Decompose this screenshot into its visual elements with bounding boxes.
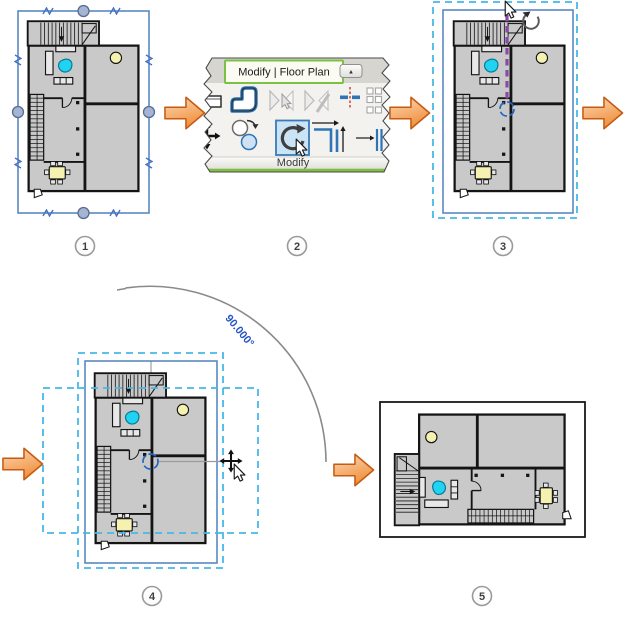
step-number: 3: [500, 241, 506, 253]
step3-rotation-center: [433, 1, 577, 218]
break-mark: [15, 55, 21, 65]
figure-canvas: Modify | Floor Plan ▲: [0, 0, 625, 618]
selection-handle-bottom[interactable]: [78, 208, 89, 219]
step-number: 1: [82, 241, 88, 253]
tutorial-figure: Modify | Floor Plan ▲: [0, 0, 625, 618]
flow-arrow-3: [583, 97, 623, 129]
step-badge-5: 5: [473, 587, 492, 606]
break-mark: [146, 55, 152, 65]
break-mark: [110, 8, 120, 14]
collapse-icon: ▲: [348, 70, 354, 76]
break-mark: [43, 210, 53, 216]
step-badge-1: 1: [76, 237, 95, 256]
selection-handle-right[interactable]: [144, 107, 155, 118]
step-badge-2: 2: [288, 237, 307, 256]
floor-plan-step5-rotated: [395, 415, 571, 526]
step5-result: [380, 402, 585, 537]
rotate-cursor-icon: [523, 12, 539, 29]
torn-icon-fragment: [197, 61, 203, 70]
step-badge-4: 4: [143, 587, 162, 606]
step1-selected-plan: [13, 6, 155, 219]
flow-arrow-5: [334, 454, 374, 486]
step2-ribbon: Modify | Floor Plan ▲: [193, 58, 395, 172]
tab-label: Modify | Floor Plan: [238, 67, 330, 79]
arc-start-tick: [117, 289, 126, 291]
modify-panel-label: Modify: [277, 157, 310, 169]
step4-rotating: 90.000°: [43, 286, 326, 568]
flow-arrow-4: [3, 448, 43, 480]
mirror-pick-axis-icon[interactable]: [270, 91, 293, 110]
selection-handle-top[interactable]: [78, 6, 89, 17]
selection-handle-left[interactable]: [13, 107, 24, 118]
break-mark: [15, 158, 21, 168]
flow-arrow-1: [165, 97, 205, 129]
floor-plan-step3: [454, 21, 565, 197]
step-number: 2: [294, 241, 300, 253]
break-mark: [146, 158, 152, 168]
break-mark: [110, 210, 120, 216]
step-badge-3: 3: [494, 237, 513, 256]
break-mark: [43, 8, 53, 14]
step-number: 4: [149, 591, 156, 603]
floor-plan-step1: [28, 21, 139, 197]
flow-arrow-2: [390, 97, 430, 129]
cursor-pointer: [234, 464, 245, 481]
step-number: 5: [479, 591, 485, 603]
